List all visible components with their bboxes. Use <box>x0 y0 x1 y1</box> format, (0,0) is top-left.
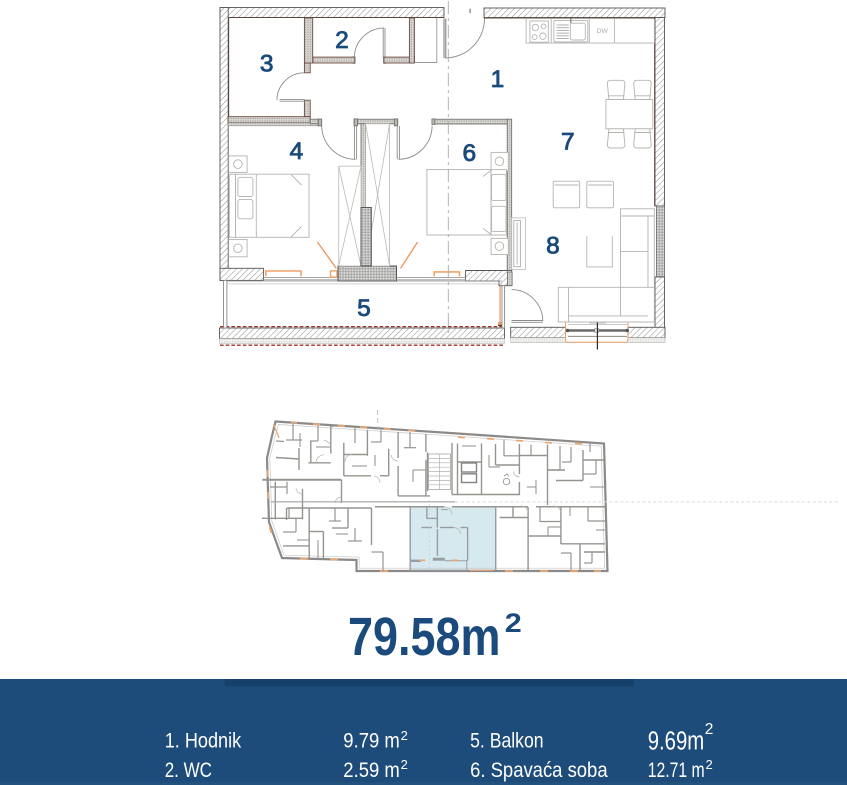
svg-text:4: 4 <box>290 138 304 165</box>
svg-text:1: 1 <box>491 66 505 93</box>
svg-text:12.71 m: 12.71 m <box>648 758 705 782</box>
svg-text:7: 7 <box>561 128 575 155</box>
svg-text:3: 3 <box>260 50 274 77</box>
svg-text:5. Balkon: 5. Balkon <box>470 729 543 753</box>
svg-text:2. WC: 2. WC <box>165 758 212 782</box>
svg-text:79.58m: 79.58m <box>348 608 501 667</box>
svg-text:DW: DW <box>597 28 609 35</box>
svg-text:1. Hodnik: 1. Hodnik <box>165 729 242 753</box>
svg-text:2: 2 <box>705 721 714 738</box>
svg-text:6. Spavaća soba: 6. Spavaća soba <box>470 758 608 782</box>
svg-text:9.69m: 9.69m <box>648 727 705 755</box>
svg-text:5: 5 <box>357 295 371 322</box>
svg-text:2: 2 <box>706 757 713 772</box>
svg-text:2: 2 <box>401 728 408 743</box>
svg-text:2: 2 <box>505 608 522 638</box>
svg-text:2: 2 <box>335 27 349 54</box>
svg-text:2.59 m: 2.59 m <box>343 758 400 782</box>
svg-text:6: 6 <box>462 140 476 167</box>
svg-text:8: 8 <box>546 232 560 259</box>
svg-text:9.79 m: 9.79 m <box>343 729 400 753</box>
svg-text:2: 2 <box>401 757 408 772</box>
